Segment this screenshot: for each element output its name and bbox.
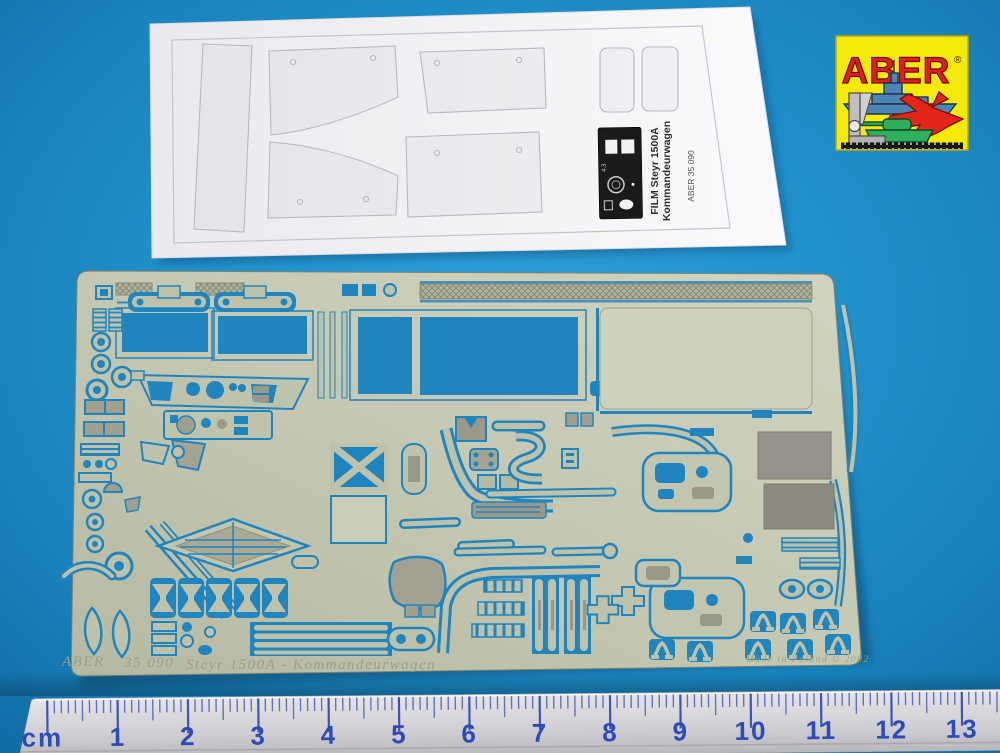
instrument-panel-film: 4.3: [598, 127, 643, 219]
pe-fret: ABER 35 090 Steyr 1500A - Kommandeurwage…: [61, 271, 872, 688]
ruler-number: 4: [321, 720, 338, 750]
metal-ruler: cm 1 2 3 4 5 6 7 8 9 10 11 12 13: [18, 689, 1000, 753]
ruler-number: 9: [672, 716, 689, 746]
product-photo: 4.3 FILM Steyr 1500A Kommandeurwagen ABE…: [0, 0, 1000, 753]
ruler-number: 3: [250, 720, 267, 750]
logo-ruler-icon: [841, 143, 963, 150]
ruler-number: 5: [391, 719, 408, 749]
panel-marking: 4.3: [602, 163, 608, 172]
fret-etched-origin: Made in Poland © 2002: [745, 654, 870, 665]
fret-etched-brand: ABER: [61, 654, 105, 670]
ruler-number: 7: [532, 718, 549, 748]
ruler-number: 13: [946, 714, 979, 744]
svg-text:ABER 35 090: ABER 35 090: [686, 150, 696, 202]
ruler-number: 1: [110, 722, 127, 752]
photo-canvas: 4.3 FILM Steyr 1500A Kommandeurwagen ABE…: [0, 0, 1000, 753]
ruler-number: 8: [602, 717, 619, 747]
film-sheet: 4.3 FILM Steyr 1500A Kommandeurwagen ABE…: [150, 7, 792, 264]
ruler-number: 6: [461, 718, 478, 748]
aber-logo: ABER ®: [836, 36, 968, 150]
logo-registered-mark: ®: [954, 55, 962, 66]
ruler-number: 11: [806, 715, 838, 745]
fret-roof-plate: [596, 308, 812, 414]
film-label: FILM Steyr 1500A Kommandeurwagen: [649, 121, 673, 221]
fret-etched-name: Steyr 1500A - Kommandeurwagen: [186, 657, 436, 673]
ruler-unit-label: cm: [21, 722, 63, 752]
film-catalog-code: ABER 35 090: [686, 150, 696, 202]
ruler-number: 2: [180, 721, 197, 751]
fret-etched-code: 35 090: [123, 655, 174, 671]
ruler-number: 10: [734, 716, 767, 746]
film-label-line2: Kommandeurwagen: [661, 121, 673, 221]
film-label-line1: FILM Steyr 1500A: [649, 127, 661, 215]
ruler-number: 12: [875, 714, 908, 744]
